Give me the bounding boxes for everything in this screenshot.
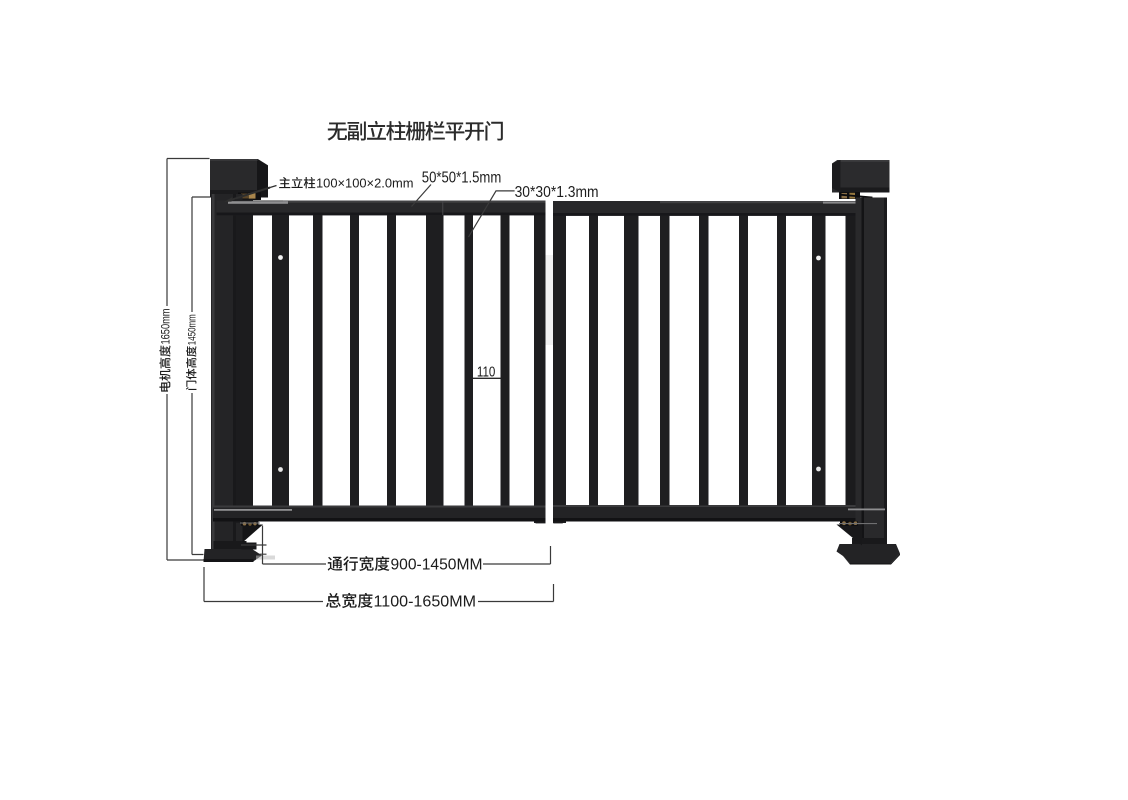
svg-text:30*30*1.3mm: 30*30*1.3mm — [515, 184, 599, 201]
svg-text:1650mm: 1650mm — [159, 308, 173, 344]
svg-text:100×100×2.0mm: 100×100×2.0mm — [316, 176, 414, 191]
svg-text:900-1450MM: 900-1450MM — [391, 557, 483, 574]
svg-text:110: 110 — [477, 364, 496, 380]
svg-text:50*50*1.5mm: 50*50*1.5mm — [422, 170, 502, 187]
svg-text:1100-1650MM: 1100-1650MM — [374, 594, 477, 611]
svg-text:1450mm: 1450mm — [187, 314, 199, 345]
